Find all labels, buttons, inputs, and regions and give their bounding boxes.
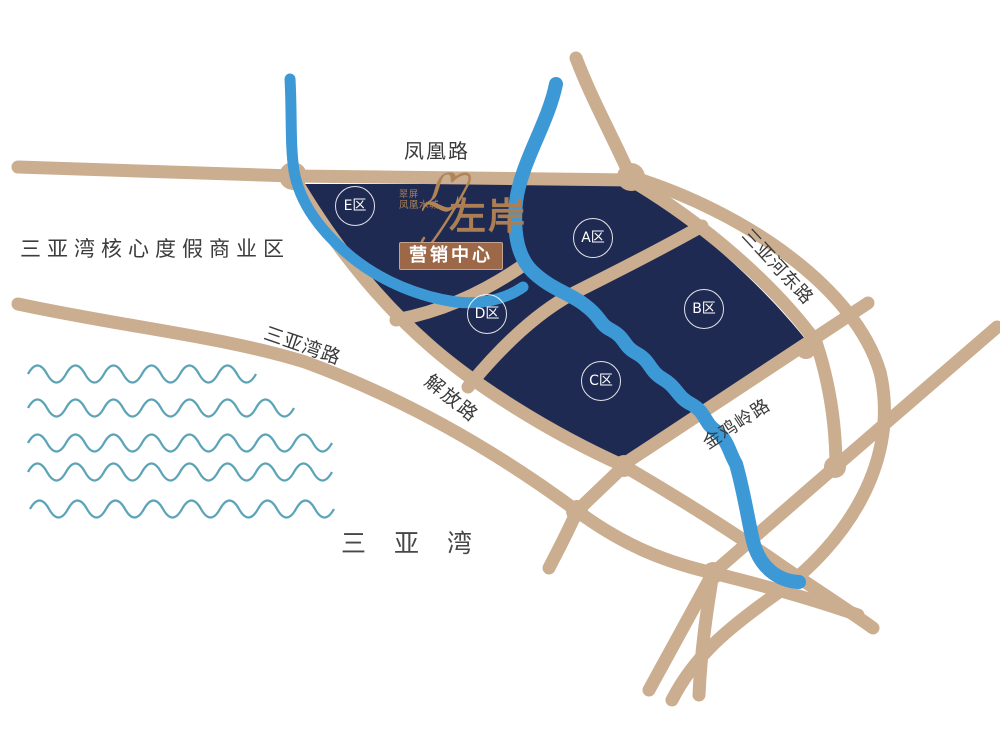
zone-marker-e: E区 <box>335 186 375 226</box>
area-label-sanya-bay: 三亚湾 <box>341 524 500 560</box>
logo-brand-line1: 翠屏 <box>399 190 419 200</box>
location-map: 凤凰路 三亚湾路 解放路 金鸡岭路 三亚河东路 三亚湾核心度假商业区 三亚湾 E… <box>0 0 1000 750</box>
map-graphics <box>0 0 1000 750</box>
zone-marker-d: D区 <box>467 294 507 334</box>
marketing-center-badge: 营销中心 <box>399 242 503 270</box>
sea-waves <box>28 366 334 518</box>
road-fenghuang <box>18 167 632 180</box>
road-north-branch <box>576 58 632 180</box>
area-label-business-district: 三亚湾核心度假商业区 <box>20 233 290 263</box>
zone-marker-b: B区 <box>684 289 724 329</box>
zone-marker-c: C区 <box>581 361 621 401</box>
road-label-fenghuang: 凤凰路 <box>404 135 470 164</box>
zone-marker-a: A区 <box>573 218 613 258</box>
logo-brand-main: 左岸 <box>449 186 527 240</box>
